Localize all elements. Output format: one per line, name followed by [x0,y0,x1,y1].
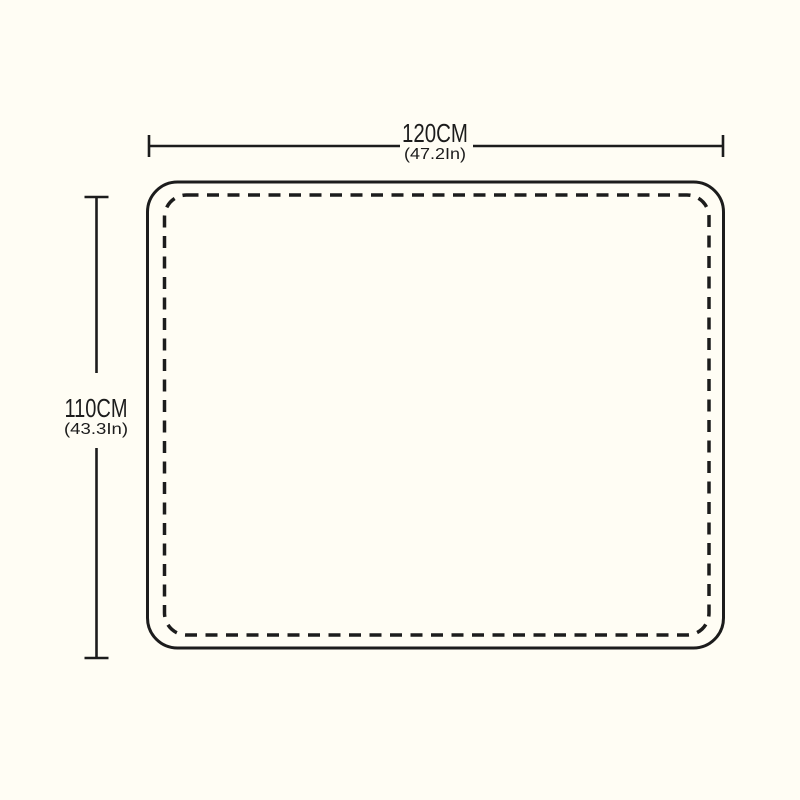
height-inch-label: (43.3In) [64,421,128,438]
width-cm-label: 120CM [402,118,468,148]
dimension-diagram: 120CM (47.2In) 110CM (43.3In) [0,0,800,800]
product-dimension-image: 120CM (47.2In) 110CM (43.3In) [0,0,800,800]
width-inch-label: (47.2In) [404,146,466,163]
height-cm-label: 110CM [65,393,128,423]
